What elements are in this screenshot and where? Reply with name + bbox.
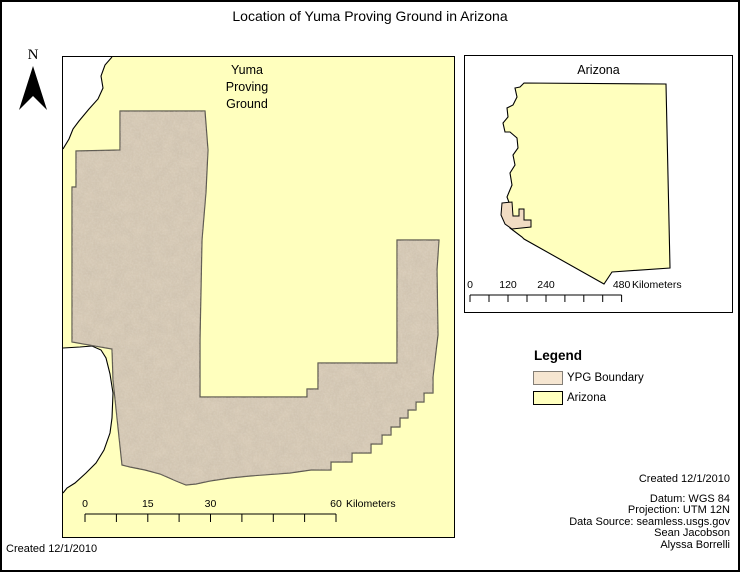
legend-label-arizona: Arizona — [567, 392, 606, 404]
legend-swatch-arizona — [533, 391, 563, 405]
legend-label-ypg: YPG Boundary — [567, 372, 644, 384]
credits-author-2: Alyssa Borrelli — [490, 540, 730, 552]
ypg-area-label-line2: Proving — [187, 79, 307, 96]
legend-item-ypg: YPG Boundary — [533, 371, 644, 385]
north-label: N — [16, 47, 50, 64]
legend-swatch-ypg — [533, 371, 563, 385]
inset-map-frame: Arizona 0 120 240 480 Kilo — [464, 55, 733, 313]
main-scalebar-label-15: 15 — [142, 498, 154, 510]
credits-projection: Projection: UTM 12N — [490, 505, 730, 517]
legend-swatch-ypg-rect — [534, 372, 563, 385]
credits-author-1: Sean Jacobson — [490, 528, 730, 540]
north-arrow-icon — [18, 66, 48, 112]
main-map-frame: 0 15 30 60 Kilometers Yuma Proving Groun… — [62, 56, 455, 538]
inset-scalebar-label-240: 240 — [537, 279, 555, 291]
ypg-area-label: Yuma Proving Ground — [187, 62, 307, 113]
main-scalebar-label-60: 60 — [330, 498, 342, 510]
ypg-area-label-line1: Yuma — [187, 62, 307, 79]
main-scalebar-label-30: 30 — [205, 498, 217, 510]
inset-map-canvas: 0 120 240 480 Kilometers — [465, 56, 732, 312]
main-map-canvas: 0 15 30 60 Kilometers — [63, 57, 454, 537]
credits-created: Created 12/1/2010 — [490, 474, 730, 486]
footer-created: Created 12/1/2010 — [6, 543, 97, 555]
north-arrow-shape — [19, 66, 47, 110]
ypg-area-label-line3: Ground — [187, 96, 307, 113]
credits-block: Created 12/1/2010 Datum: WGS 84 Projecti… — [490, 474, 730, 551]
arizona-state-polygon — [503, 83, 670, 284]
map-document: Location of Yuma Proving Ground in Arizo… — [0, 0, 740, 572]
inset-scalebar-label-0: 0 — [467, 279, 473, 291]
main-scalebar-label-0: 0 — [82, 498, 88, 510]
inset-scalebar-unit: Kilometers — [632, 279, 682, 291]
inset-scalebar — [470, 295, 622, 302]
main-scalebar-unit: Kilometers — [346, 498, 396, 510]
inset-scalebar-label-480: 480 — [613, 279, 631, 291]
legend-item-arizona: Arizona — [533, 391, 644, 405]
page-title: Location of Yuma Proving Ground in Arizo… — [2, 8, 738, 24]
north-arrow: N — [16, 47, 50, 112]
inset-scalebar-label-120: 120 — [499, 279, 517, 291]
legend: Legend YPG Boundary Arizona — [533, 348, 644, 411]
legend-title: Legend — [534, 348, 644, 363]
legend-swatch-arizona-rect — [534, 392, 563, 405]
